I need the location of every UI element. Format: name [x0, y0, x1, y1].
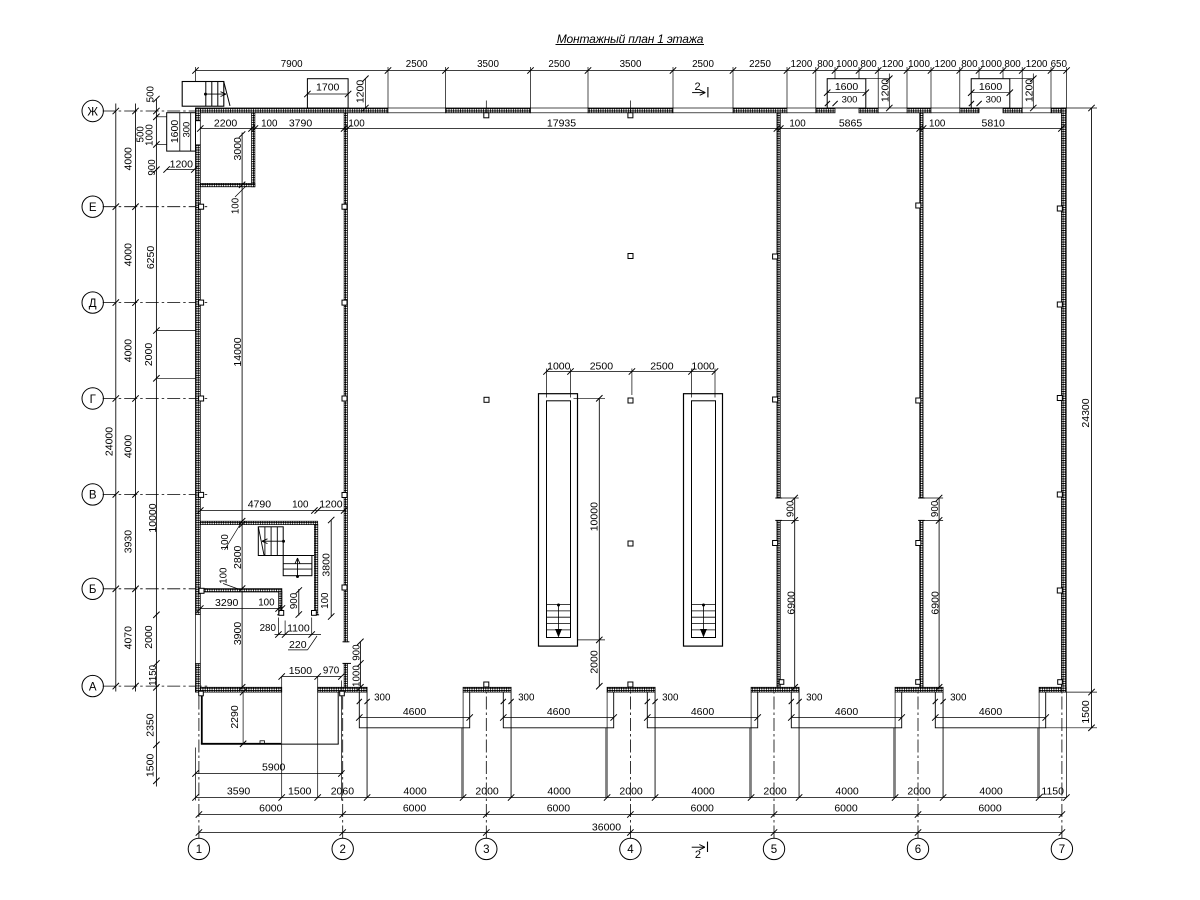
svg-text:6000: 6000: [547, 802, 571, 814]
svg-text:Б: Б: [89, 584, 97, 596]
svg-text:300: 300: [842, 95, 858, 106]
svg-text:6000: 6000: [691, 802, 715, 814]
svg-text:1500: 1500: [144, 754, 156, 778]
svg-text:2000: 2000: [619, 785, 643, 797]
svg-text:800: 800: [817, 59, 834, 70]
svg-text:900: 900: [930, 500, 941, 517]
svg-text:1200: 1200: [319, 499, 343, 511]
svg-text:3290: 3290: [215, 597, 239, 609]
svg-text:2350: 2350: [144, 713, 156, 737]
svg-text:1600: 1600: [169, 120, 181, 144]
svg-text:6000: 6000: [978, 802, 1002, 814]
svg-text:1500: 1500: [288, 785, 312, 797]
svg-text:1000: 1000: [980, 59, 1002, 70]
svg-text:36000: 36000: [592, 821, 621, 833]
svg-text:1200: 1200: [1026, 59, 1048, 70]
svg-text:2: 2: [339, 844, 345, 856]
svg-text:Ж: Ж: [87, 106, 98, 118]
svg-text:100: 100: [292, 499, 309, 510]
svg-text:1: 1: [196, 844, 202, 856]
svg-text:3590: 3590: [227, 785, 251, 797]
svg-text:4600: 4600: [547, 706, 571, 718]
svg-text:6250: 6250: [145, 246, 157, 270]
svg-text:4000: 4000: [122, 435, 134, 459]
svg-text:300: 300: [950, 693, 967, 704]
svg-text:970: 970: [323, 666, 340, 677]
svg-text:10000: 10000: [147, 503, 159, 532]
svg-text:4: 4: [627, 844, 634, 856]
svg-text:24000: 24000: [104, 427, 116, 456]
svg-text:2500: 2500: [548, 59, 570, 70]
svg-text:900: 900: [147, 159, 158, 176]
svg-text:1200: 1200: [935, 59, 957, 70]
svg-text:300: 300: [518, 693, 535, 704]
svg-text:100: 100: [231, 197, 242, 214]
svg-text:2500: 2500: [692, 59, 714, 70]
svg-text:1000: 1000: [547, 360, 571, 372]
svg-text:1000: 1000: [144, 124, 155, 146]
svg-text:500: 500: [145, 85, 156, 102]
svg-text:1700: 1700: [316, 82, 340, 94]
svg-text:5865: 5865: [839, 118, 863, 130]
svg-text:1200: 1200: [1023, 79, 1035, 103]
svg-text:800: 800: [961, 59, 978, 70]
svg-text:3930: 3930: [122, 530, 134, 554]
svg-text:900: 900: [289, 592, 300, 609]
svg-text:4000: 4000: [403, 785, 427, 797]
svg-text:6900: 6900: [930, 591, 942, 615]
svg-text:2000: 2000: [907, 785, 931, 797]
svg-text:5: 5: [771, 844, 777, 856]
svg-text:1000: 1000: [351, 665, 362, 687]
svg-text:24300: 24300: [1080, 398, 1092, 427]
svg-text:4000: 4000: [691, 785, 715, 797]
svg-text:6000: 6000: [403, 802, 427, 814]
svg-text:100: 100: [348, 118, 365, 129]
svg-text:4000: 4000: [122, 147, 134, 171]
svg-text:2000: 2000: [143, 625, 155, 649]
svg-text:300: 300: [806, 693, 823, 704]
svg-text:2290: 2290: [229, 705, 241, 729]
svg-text:800: 800: [1004, 59, 1021, 70]
svg-text:6000: 6000: [834, 802, 858, 814]
svg-text:1600: 1600: [835, 81, 859, 93]
svg-text:17935: 17935: [547, 118, 576, 130]
svg-text:1150: 1150: [1041, 785, 1064, 797]
svg-text:3800: 3800: [320, 553, 332, 577]
svg-text:1200: 1200: [791, 59, 813, 70]
svg-text:1100: 1100: [287, 622, 310, 634]
svg-text:3500: 3500: [620, 59, 642, 70]
svg-text:Г: Г: [90, 394, 97, 406]
svg-text:2060: 2060: [331, 785, 355, 797]
svg-text:2250: 2250: [749, 59, 771, 70]
svg-text:2500: 2500: [650, 360, 674, 372]
svg-text:5810: 5810: [982, 118, 1006, 130]
svg-text:А: А: [89, 681, 97, 693]
svg-text:900: 900: [351, 644, 362, 661]
svg-text:2800: 2800: [232, 545, 244, 569]
svg-text:2500: 2500: [590, 360, 614, 372]
svg-text:2200: 2200: [214, 118, 238, 130]
svg-text:300: 300: [182, 122, 193, 138]
svg-text:2500: 2500: [406, 59, 428, 70]
svg-text:650: 650: [1051, 59, 1068, 70]
svg-text:4000: 4000: [547, 785, 571, 797]
svg-text:2: 2: [694, 81, 700, 93]
svg-text:100: 100: [320, 592, 331, 609]
svg-text:Е: Е: [89, 202, 97, 214]
svg-text:10000: 10000: [589, 502, 601, 531]
svg-text:220: 220: [289, 639, 307, 651]
svg-text:1000: 1000: [836, 59, 858, 70]
svg-text:4600: 4600: [835, 706, 859, 718]
svg-text:2000: 2000: [763, 785, 787, 797]
svg-text:3500: 3500: [477, 59, 499, 70]
svg-text:4000: 4000: [979, 785, 1003, 797]
svg-text:6: 6: [915, 844, 921, 856]
svg-text:100: 100: [258, 598, 275, 609]
svg-text:1600: 1600: [979, 81, 1003, 93]
svg-text:14000: 14000: [232, 337, 244, 366]
svg-text:2: 2: [695, 849, 701, 861]
svg-text:300: 300: [662, 693, 679, 704]
svg-text:1150: 1150: [148, 664, 159, 686]
svg-text:2000: 2000: [143, 343, 155, 367]
svg-text:3900: 3900: [232, 622, 244, 646]
svg-text:Монтажный план 1 этажа: Монтажный план 1 этажа: [557, 32, 704, 46]
svg-text:280: 280: [260, 623, 277, 634]
svg-text:6000: 6000: [259, 802, 283, 814]
svg-text:100: 100: [789, 118, 806, 129]
svg-text:1200: 1200: [882, 59, 904, 70]
svg-text:2000: 2000: [589, 650, 601, 674]
svg-text:4600: 4600: [691, 706, 715, 718]
svg-text:3790: 3790: [289, 118, 313, 130]
svg-text:4600: 4600: [979, 706, 1003, 718]
svg-text:4000: 4000: [835, 785, 859, 797]
svg-text:3: 3: [483, 844, 489, 856]
svg-text:4000: 4000: [122, 339, 134, 363]
svg-text:1500: 1500: [1080, 700, 1092, 724]
svg-text:4000: 4000: [122, 243, 134, 267]
svg-text:1000: 1000: [691, 360, 715, 372]
svg-text:900: 900: [786, 500, 797, 517]
svg-text:4790: 4790: [248, 499, 272, 511]
svg-text:1200: 1200: [354, 80, 366, 104]
svg-text:1200: 1200: [879, 79, 891, 103]
svg-text:6900: 6900: [785, 591, 797, 615]
svg-text:1000: 1000: [908, 59, 930, 70]
svg-text:800: 800: [860, 59, 877, 70]
svg-text:Д: Д: [89, 298, 97, 310]
svg-text:1500: 1500: [289, 665, 313, 677]
svg-text:100: 100: [261, 118, 278, 129]
svg-text:4070: 4070: [122, 626, 134, 650]
svg-text:7900: 7900: [281, 59, 303, 70]
svg-text:В: В: [89, 490, 97, 502]
svg-text:100: 100: [219, 567, 230, 584]
svg-text:1200: 1200: [170, 159, 194, 171]
svg-text:300: 300: [986, 95, 1002, 106]
svg-text:4600: 4600: [403, 706, 427, 718]
svg-text:7: 7: [1059, 844, 1065, 856]
svg-text:300: 300: [374, 693, 391, 704]
svg-text:100: 100: [929, 118, 946, 129]
svg-text:2000: 2000: [475, 785, 499, 797]
